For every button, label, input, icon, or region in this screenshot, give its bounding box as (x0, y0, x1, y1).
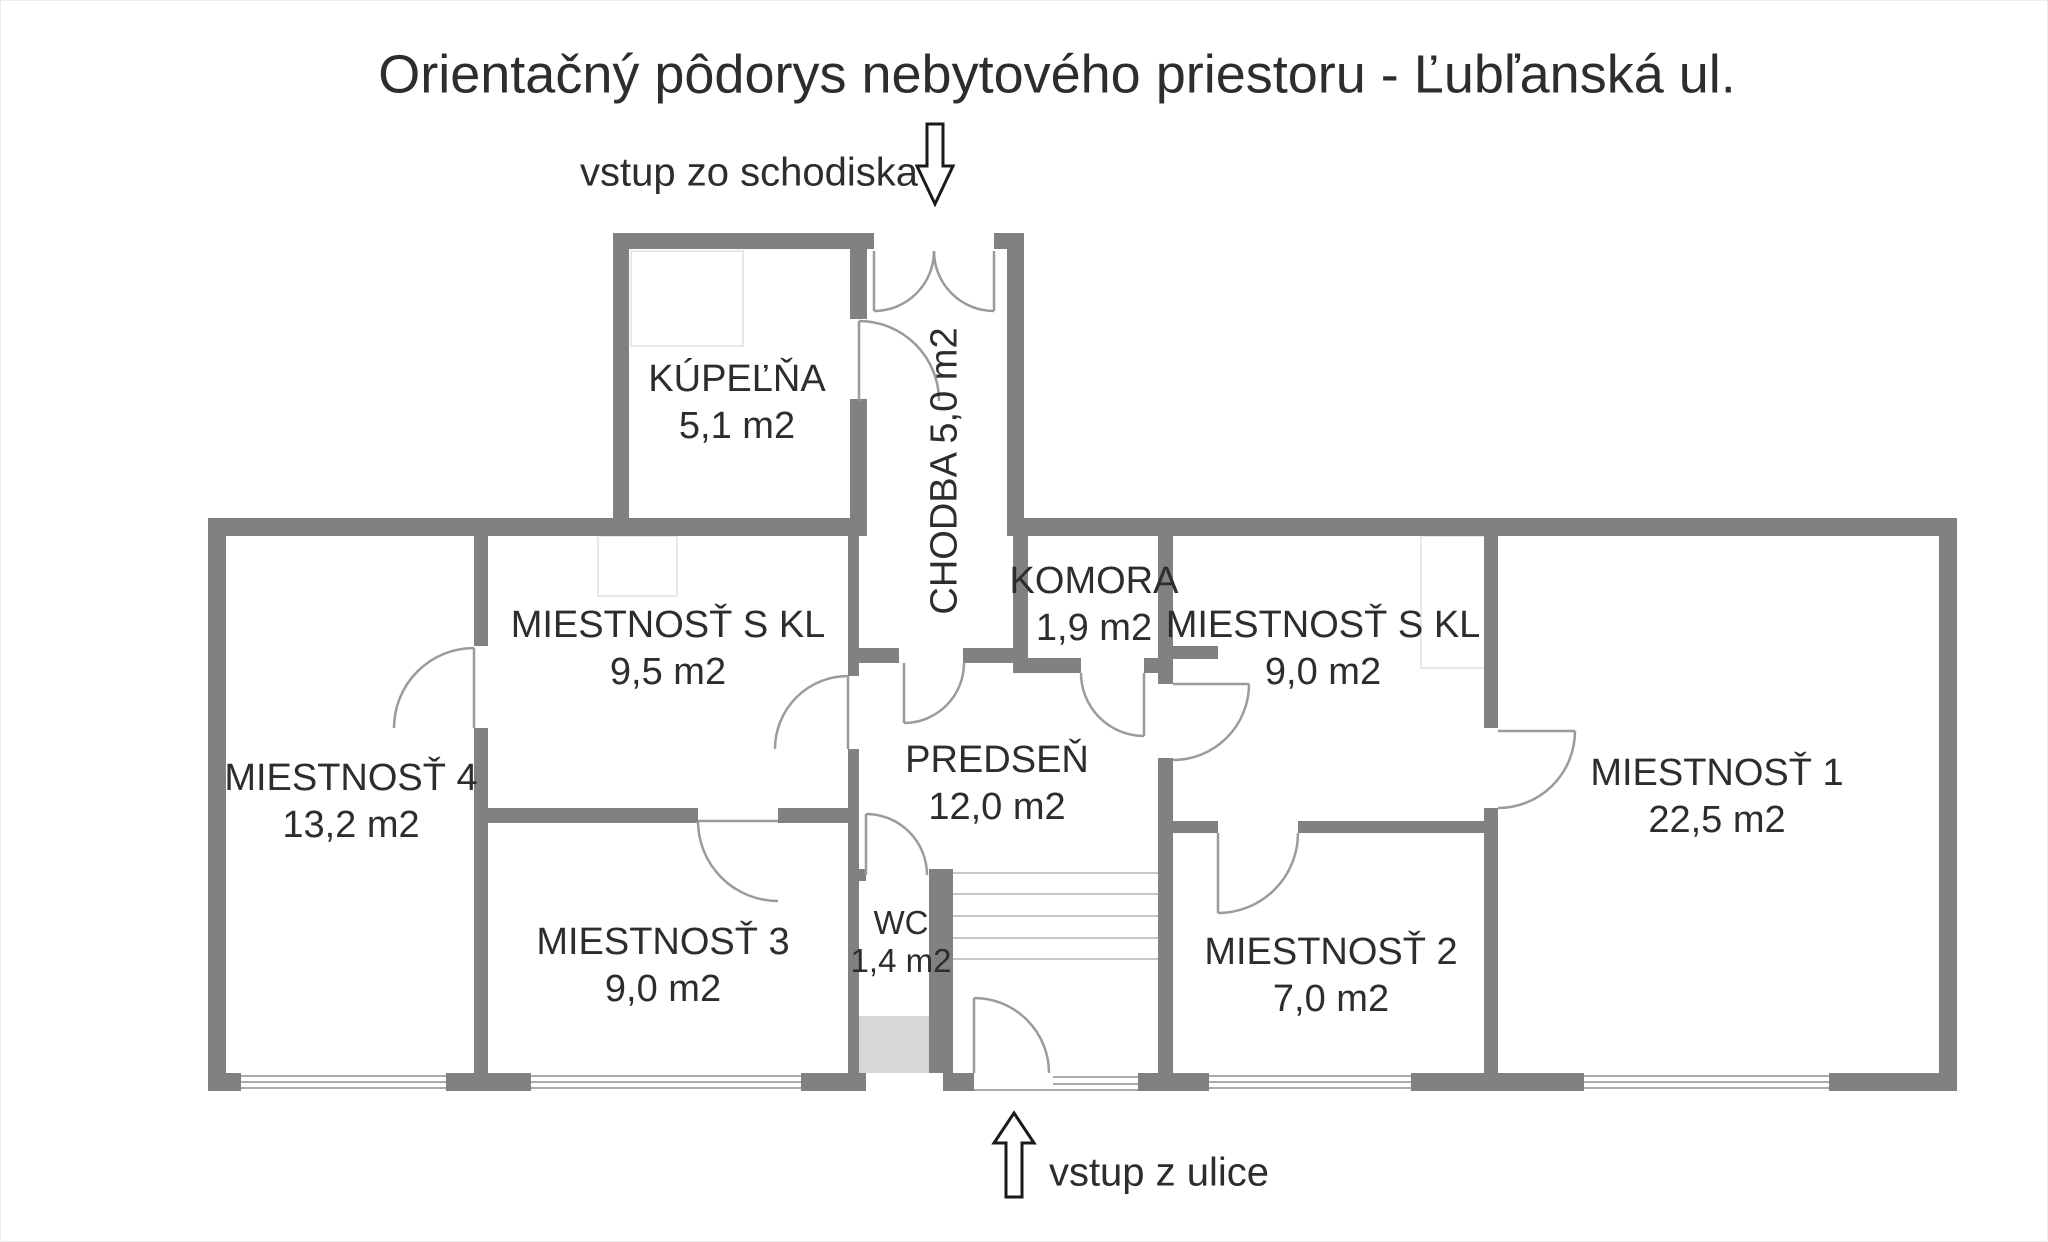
bathtub-outline (631, 251, 743, 346)
room-name: KÚPEĽŇA (648, 356, 825, 403)
room-label-kupelna: KÚPEĽŇA 5,1 m2 (648, 356, 825, 450)
under-stair-area (859, 1016, 929, 1073)
room-area: 9,0 m2 (536, 966, 789, 1013)
door-arc-staircase-left (874, 251, 934, 311)
room-area: 5,1 m2 (648, 403, 825, 450)
entrance-top-label: vstup zo schodiska (580, 150, 918, 197)
room-name: MIESTNOSŤ 4 (224, 755, 477, 802)
page-title: Orientačný pôdorys nebytového priestoru … (378, 52, 1736, 99)
room-label-m2: MIESTNOSŤ 2 7,0 m2 (1204, 929, 1457, 1023)
arrow-down-icon (917, 124, 953, 204)
room-name: MIESTNOSŤ 3 (536, 919, 789, 966)
room-area: 13,2 m2 (224, 802, 477, 849)
room-area: 12,0 m2 (905, 784, 1089, 831)
room-label-m4: MIESTNOSŤ 4 13,2 m2 (224, 755, 477, 849)
door-arc-staircase-right (934, 251, 994, 311)
door-arc-room4 (394, 648, 474, 728)
room-label-m3: MIESTNOSŤ 3 9,0 m2 (536, 919, 789, 1013)
room-area: 22,5 m2 (1590, 797, 1843, 844)
room-area: 9,5 m2 (511, 649, 826, 696)
door-arc-room1 (1498, 731, 1575, 808)
walls (208, 233, 1957, 1091)
door-arc-room2 (1218, 833, 1298, 913)
room-name: WC (851, 904, 952, 942)
room-label-predsen: PREDSEŇ 12,0 m2 (905, 737, 1089, 831)
room-name: CHODBA 5,0 m2 (922, 327, 969, 614)
room-label-komora: KOMORA 1,9 m2 (1010, 558, 1179, 652)
entrance-bottom-label: vstup z ulice (1049, 1150, 1269, 1197)
room-area: 1,9 m2 (1010, 605, 1179, 652)
room-label-m1: MIESTNOSŤ 1 22,5 m2 (1590, 750, 1843, 844)
room-label-chodba: CHODBA 5,0 m2 (922, 327, 969, 614)
room-name: MIESTNOSŤ S KL (1166, 602, 1481, 649)
room-label-wc: WC 1,4 m2 (851, 904, 952, 980)
arrow-up-icon (994, 1113, 1034, 1197)
furniture-outline (598, 536, 677, 596)
floor-plan-canvas: Orientačný pôdorys nebytového priestoru … (0, 0, 2048, 1242)
stairs-icon (953, 873, 1158, 959)
room-name: PREDSEŇ (905, 737, 1089, 784)
room-area: 1,4 m2 (851, 942, 952, 980)
room-name: KOMORA (1010, 558, 1179, 605)
door-arc-corridor-hall (904, 663, 964, 723)
room-name: MIESTNOSŤ S KL (511, 602, 826, 649)
room-area: 7,0 m2 (1204, 976, 1457, 1023)
door-arc-komora (1081, 673, 1144, 736)
room-name: MIESTNOSŤ 2 (1204, 929, 1457, 976)
room-label-kl90: MIESTNOSŤ S KL 9,0 m2 (1166, 602, 1481, 696)
room-name: MIESTNOSŤ 1 (1590, 750, 1843, 797)
room-area: 9,0 m2 (1166, 649, 1481, 696)
room-label-kl95: MIESTNOSŤ S KL 9,5 m2 (511, 602, 826, 696)
door-arc-room3 (698, 821, 778, 901)
door-arc-street (974, 998, 1049, 1073)
